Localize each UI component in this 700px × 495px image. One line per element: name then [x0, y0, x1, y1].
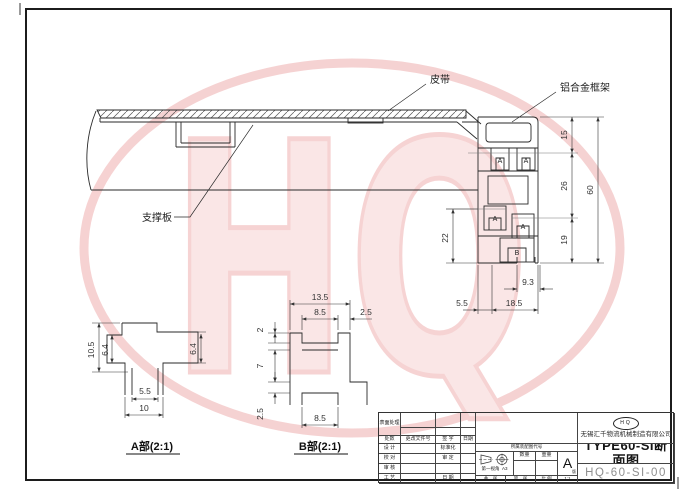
row-approve: 审 定 [436, 454, 461, 464]
dim-b-13-5: 13.5 [312, 292, 329, 302]
company-cell: HQ 无锡汇千物流机械制造有限公司 [578, 413, 675, 444]
tb-cell-empty [461, 413, 476, 428]
dim-9-3: 9.3 [522, 277, 534, 287]
dim-19: 19 [559, 235, 569, 245]
row-date: 日 期 [436, 474, 461, 484]
tb-cell-empty [461, 464, 476, 474]
header-changes: 处数 [379, 436, 401, 444]
projection-cell: 第一视角 A3 [476, 452, 514, 476]
drawing-number: HQ-60-SI-00 [578, 464, 675, 484]
belongs-assembly-cell: 所属装配图代号 [476, 444, 578, 452]
dim-22: 22 [440, 233, 450, 243]
dim-15: 15 [559, 130, 569, 140]
dim-a-10-5: 10.5 [86, 341, 96, 358]
tb-cell-empty [436, 413, 461, 428]
dim-a-6-4-left: 6.4 [100, 344, 110, 356]
company-name: 无锡汇千物流机械制造有限公司 [581, 431, 672, 438]
slot-mark-b: B [515, 250, 520, 257]
tb-cell-empty [461, 454, 476, 464]
break-line [87, 111, 96, 190]
surface-treatment-cell: 表面处理 [379, 413, 401, 436]
belt-section [97, 110, 466, 118]
tb-cell-empty [461, 444, 476, 454]
dim-5-5: 5.5 [456, 298, 468, 308]
header-change-doc: 更改文件号 [401, 436, 436, 444]
dim-60: 60 [585, 185, 595, 195]
dim-b-8-5-bottom: 8.5 [314, 413, 326, 423]
belt-label: 皮带 [430, 73, 450, 86]
slot-mark-a1: A [498, 158, 503, 165]
hq-logo-icon: HQ [613, 417, 639, 430]
tb-cell-empty [436, 464, 461, 474]
row-process: 工 艺 [379, 474, 401, 484]
scale-value-cell: 1:1 [558, 476, 578, 484]
dim-b-7: 7 [255, 363, 265, 368]
tb-cell-empty [401, 428, 436, 436]
dim-26: 26 [559, 181, 569, 191]
sheet-no-cell: 第 张 [506, 476, 536, 484]
support-label: 支撑板 [142, 211, 172, 224]
title-block: 表面处理 处数 更改文件号 签 字 日期 设 计 标准化 校 对 审 定 审 核… [378, 412, 674, 483]
dim-a-6-4-right: 6.4 [188, 343, 198, 355]
hq-watermark: HQ [84, 63, 620, 448]
dim-b-2: 2 [255, 327, 265, 332]
qty-header: 数量 [514, 452, 536, 461]
weight-header: 重量 [536, 452, 558, 461]
projection-label: 第一视角 [481, 466, 499, 471]
tb-cell-empty [461, 428, 476, 436]
row-design: 设 计 [379, 444, 401, 454]
header-date: 日期 [461, 436, 476, 444]
frame-label: 铝合金框架 [560, 81, 610, 94]
sheets-total-cell: 共 张 [476, 476, 506, 484]
detail-b-title: B部(2:1) [299, 439, 342, 453]
tb-cell-empty [401, 474, 436, 484]
detail-a-title: A部(2:1) [131, 439, 174, 453]
revision-sub: 版 [572, 470, 576, 474]
weight-value [536, 461, 558, 476]
revision-cell: A 版 [558, 452, 578, 476]
tb-cell-empty [476, 413, 578, 444]
dim-a-5-5: 5.5 [139, 386, 151, 396]
slot-mark-a4: A [521, 224, 526, 231]
tb-cell-empty [461, 474, 476, 484]
revision-letter: A [563, 456, 572, 471]
drawing-title: TYPE60-SI断面图 [578, 444, 675, 464]
header-signature: 签 字 [436, 436, 461, 444]
tb-cell-empty [401, 413, 436, 428]
scale-label-cell: 比 例 [536, 476, 558, 484]
tb-cell-empty [401, 444, 436, 454]
row-standardization: 标准化 [436, 444, 461, 454]
first-angle-projection-icon [478, 453, 512, 466]
watermark-letters: HQ [170, 76, 530, 448]
row-check: 校 对 [379, 454, 401, 464]
tb-cell-empty [401, 464, 436, 474]
slot-mark-a2: A [524, 158, 529, 165]
row-review: 审 核 [379, 464, 401, 474]
drawing-page: HQ [0, 0, 700, 495]
tb-cell-empty [401, 454, 436, 464]
dim-b-2-5-right: 2.5 [360, 307, 372, 317]
dim-a-10: 10 [139, 403, 149, 413]
qty-value [514, 461, 536, 476]
dim-18-5: 18.5 [506, 298, 523, 308]
paper-size-label: A3 [502, 466, 508, 471]
dim-b-8-5-top: 8.5 [314, 307, 326, 317]
tb-cell-empty [436, 428, 461, 436]
slot-mark-a3: A [493, 216, 498, 223]
dim-b-2-5-bottom: 2.5 [255, 408, 265, 420]
